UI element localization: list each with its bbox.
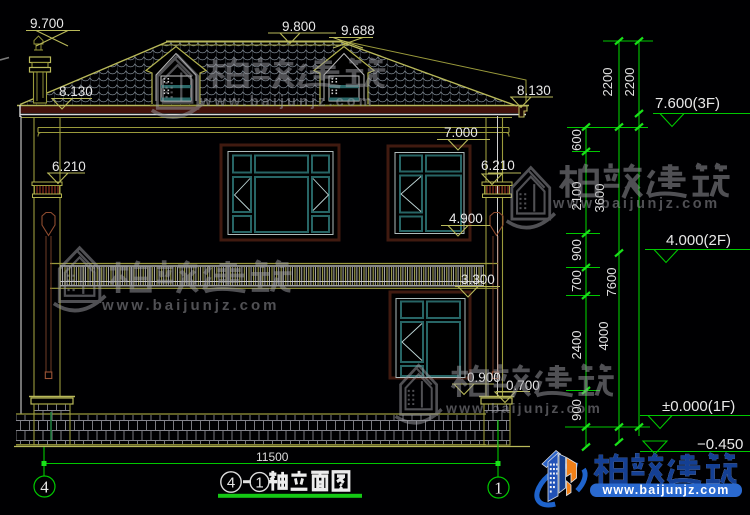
svg-text:www.baijunjz.com: www.baijunjz.com — [552, 196, 720, 212]
svg-text:700: 700 — [569, 270, 584, 292]
svg-text:3.300: 3.300 — [461, 272, 495, 287]
svg-text:4000: 4000 — [596, 322, 611, 351]
svg-text:7600: 7600 — [604, 268, 619, 297]
svg-text:11500: 11500 — [256, 450, 289, 464]
svg-text:8.130: 8.130 — [59, 84, 93, 99]
svg-text:2400: 2400 — [569, 331, 584, 360]
svg-text:4: 4 — [40, 478, 49, 497]
svg-text:1: 1 — [255, 475, 263, 492]
svg-text:www.baijunjz.com: www.baijunjz.com — [199, 94, 375, 110]
svg-text:2200: 2200 — [600, 68, 615, 97]
svg-text:−0.450: −0.450 — [697, 436, 743, 453]
svg-text:www.baijunjz.com: www.baijunjz.com — [601, 483, 729, 497]
svg-text:4.000(2F): 4.000(2F) — [666, 232, 731, 249]
svg-text:9.700: 9.700 — [30, 16, 64, 31]
svg-text:600: 600 — [569, 129, 584, 151]
svg-text:2200: 2200 — [622, 68, 637, 97]
svg-text:9.688: 9.688 — [341, 23, 375, 38]
svg-text:7.000: 7.000 — [444, 125, 478, 140]
svg-text:9.800: 9.800 — [282, 19, 316, 34]
svg-text:7.600(3F): 7.600(3F) — [655, 95, 720, 112]
svg-text:www.baijunjz.com: www.baijunjz.com — [445, 400, 602, 416]
svg-text:1: 1 — [494, 479, 503, 498]
svg-text:6.210: 6.210 — [52, 159, 86, 174]
svg-text:4: 4 — [227, 475, 235, 492]
svg-text:900: 900 — [569, 239, 584, 261]
svg-text:www.baijunjz.com: www.baijunjz.com — [101, 297, 279, 314]
svg-text:6.210: 6.210 — [481, 158, 515, 173]
svg-text:8.130: 8.130 — [517, 83, 551, 98]
svg-text:4.900: 4.900 — [449, 211, 483, 226]
svg-text:±0.000(1F): ±0.000(1F) — [662, 398, 735, 415]
